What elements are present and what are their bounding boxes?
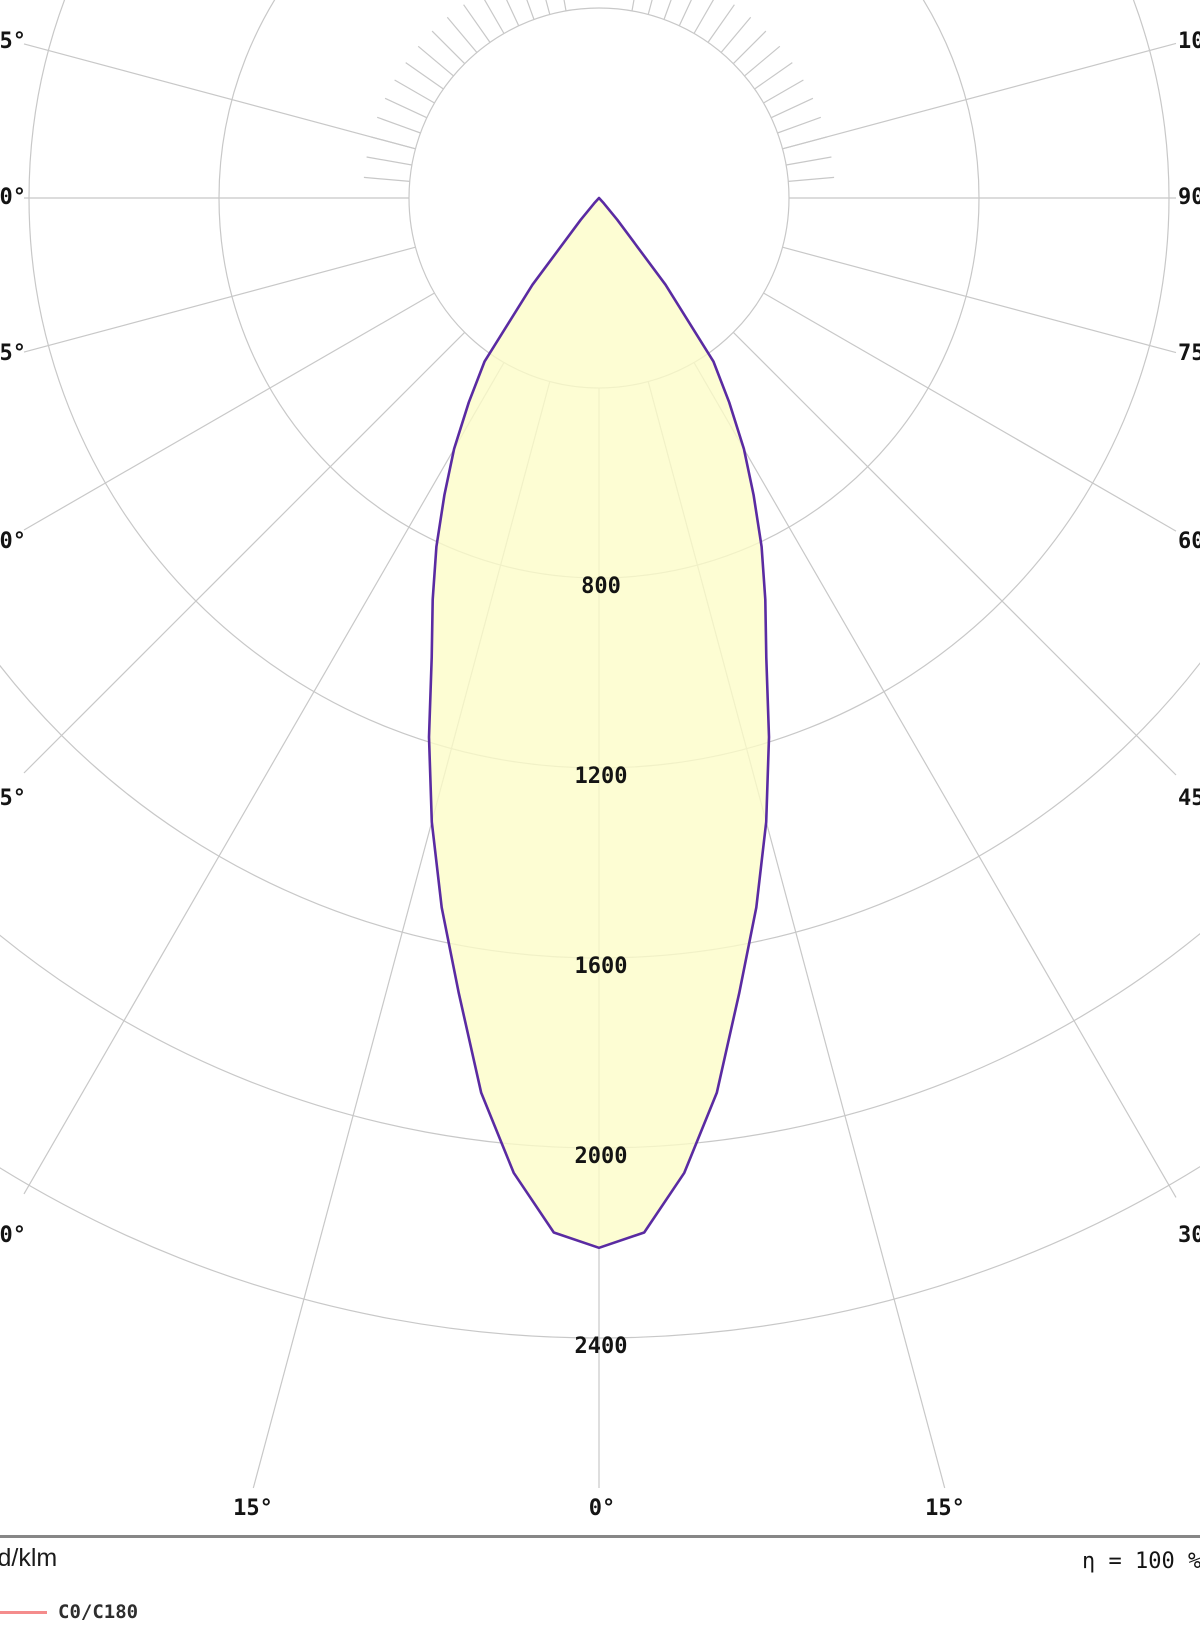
ring-label-1200: 1200 — [575, 762, 628, 792]
angle-label-right-30: 30° — [1178, 1221, 1200, 1251]
polar-chart: 800 1200 1600 2000 2400 105° 90° 75° 60°… — [0, 0, 1200, 1535]
angle-label-right-75: 75° — [1178, 339, 1200, 369]
photometric-diagram: 800 1200 1600 2000 2400 105° 90° 75° 60°… — [0, 0, 1200, 1637]
angle-label-left-105: 105° — [0, 27, 26, 57]
angle-label-left-45: 45° — [0, 784, 26, 814]
units-label: cd/klm — [0, 1543, 57, 1573]
angle-label-right-45: 45° — [1178, 784, 1200, 814]
ring-label-2400: 2400 — [575, 1332, 628, 1362]
efficiency-label: η = 100 % — [1082, 1549, 1200, 1575]
angle-label-bottom-0: 0° — [589, 1494, 616, 1524]
angle-label-right-60: 60° — [1178, 527, 1200, 557]
angle-label-right-90: 90° — [1178, 183, 1200, 213]
ring-label-1600: 1600 — [575, 952, 628, 982]
angle-label-right-105: 105° — [1178, 27, 1200, 57]
legend: C0/C180 — [0, 1596, 1200, 1632]
ring-label-2000: 2000 — [575, 1142, 628, 1172]
angle-label-left-60: 60° — [0, 527, 26, 557]
legend-series-label: C0/C180 — [58, 1599, 138, 1625]
angle-label-left-75: 75° — [0, 339, 26, 369]
angle-label-left-30: 30° — [0, 1221, 26, 1251]
angle-label-bottom-15-left: 15° — [233, 1494, 273, 1524]
info-bar-divider — [0, 1535, 1200, 1538]
legend-line-sample — [0, 1611, 47, 1614]
angle-label-left-90: 90° — [0, 183, 26, 213]
angle-label-bottom-15-right: 15° — [925, 1494, 965, 1524]
ring-label-800: 800 — [581, 572, 621, 602]
